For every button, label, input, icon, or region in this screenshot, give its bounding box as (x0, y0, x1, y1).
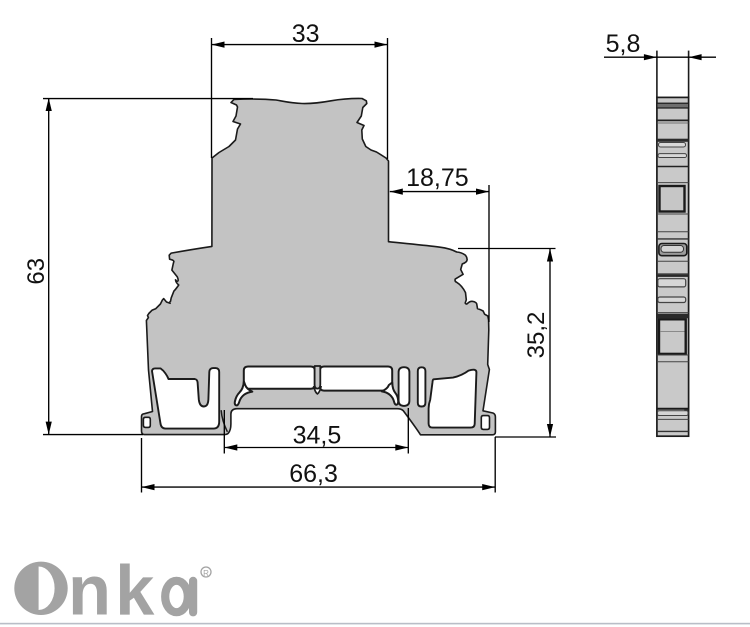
svg-text:66,3: 66,3 (289, 460, 338, 488)
svg-text:R: R (203, 569, 209, 578)
svg-text:33: 33 (292, 20, 320, 48)
svg-text:nk: nk (68, 551, 158, 627)
svg-text:35,2: 35,2 (523, 312, 550, 359)
svg-text:34,5: 34,5 (293, 422, 342, 450)
svg-text:5,8: 5,8 (606, 30, 641, 58)
svg-text:18,75: 18,75 (406, 164, 469, 192)
svg-text:63: 63 (23, 258, 50, 285)
